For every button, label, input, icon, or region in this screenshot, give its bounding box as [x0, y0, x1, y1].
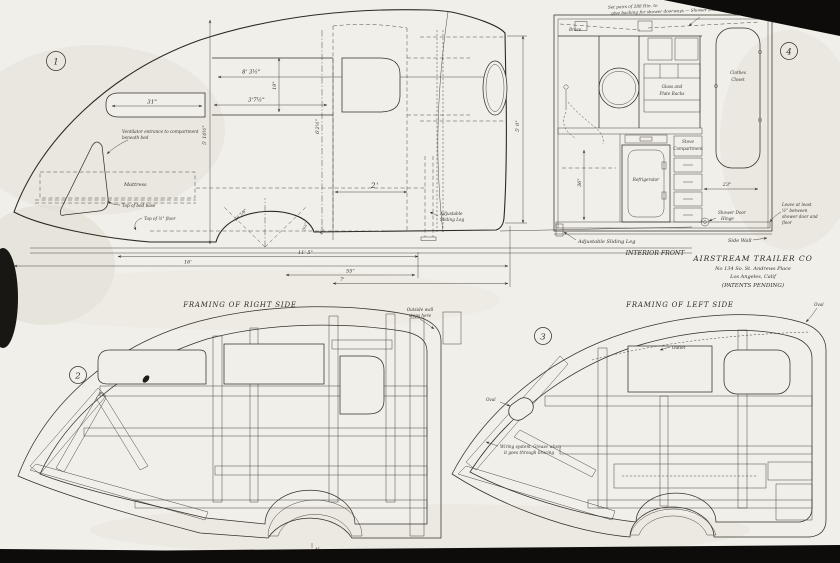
hinge-label-2: Hinge: [720, 216, 734, 221]
wiring-note-1: Wiring system. Grease when: [500, 444, 561, 449]
view2-title: FRAMING OF RIGHT SIDE: [182, 301, 297, 309]
floor-label: Top of ½" floor: [144, 216, 177, 221]
dim-front-window: 31": [147, 100, 157, 106]
outside-wall-note-1: Outside wall: [407, 307, 434, 312]
view1-number: 1: [53, 58, 58, 68]
company-patents: (PATENTS PENDING): [722, 282, 784, 289]
view2-front-window: [98, 350, 206, 384]
dim-upper-short: 3'7½": [248, 97, 265, 104]
dim-door-to-wheel: 2': [370, 182, 379, 190]
dim-window-height: 19": [272, 81, 278, 90]
dim-len-a: 11' 5": [298, 250, 313, 256]
view2-number: 2: [74, 372, 80, 382]
bed-base-label: Top of bed base: [122, 203, 156, 208]
view4-leg-label: Adjustable Sliding Leg: [577, 239, 635, 245]
company-address: No 134 So. St. Andrews Place: [714, 266, 791, 272]
refrigerator-label: Refrigerator: [632, 177, 660, 182]
view3-number: 3: [540, 333, 545, 343]
company-city: Los Angeles, Calif: [729, 274, 777, 280]
view3-title: FRAMING OF LEFT SIDE: [625, 301, 734, 309]
blueprint-sheet: 1 31" 8' 3½" 3'7½" 19": [0, 0, 840, 563]
ventilator-note-2: beneath bed: [122, 135, 149, 140]
wiring-note-2: it goes through bracing: [504, 450, 554, 455]
ventilator-note-1: Ventilator entrance to compartment: [122, 129, 199, 134]
rear-oval-window: [483, 61, 507, 115]
dim-cabinet: 36": [577, 178, 583, 187]
hinge-label-1: Shower Door: [718, 210, 747, 215]
view2-door-window: [340, 356, 384, 414]
front-window: 31": [106, 93, 205, 117]
dim-len-c: 7': [340, 277, 345, 283]
view3-mid-window: [628, 346, 712, 392]
dim-rear-height: 5' 0": [515, 120, 521, 132]
leave-note-1: Leave at least: [781, 202, 812, 207]
brace-label: Brace: [568, 27, 582, 32]
mattress-label: Mattress: [123, 182, 147, 188]
dim-body-height: 5' 10½": [201, 125, 208, 145]
view2-mid-window: [224, 344, 324, 384]
leave-note-2: ½" between: [782, 208, 808, 213]
dim-door-height: 6'2½": [314, 119, 321, 134]
glass-label-2: Plate Racks: [659, 91, 685, 96]
leave-note-3: shower door and: [782, 214, 818, 219]
dim-overall: 16': [184, 260, 192, 266]
stove-label-2: Compartment: [673, 146, 703, 151]
glass-label-1: Glass and: [662, 84, 683, 89]
dim-len-b: 55": [346, 269, 355, 275]
oval-rear-label: Oval: [814, 302, 824, 307]
outlet-label: Outlet: [672, 345, 686, 350]
dim-shelf: 23": [722, 182, 732, 188]
view4-number: 4: [785, 48, 791, 58]
view4-caption: INTERIOR FRONT: [625, 250, 686, 257]
company-name: AIRSTREAM TRAILER CO: [692, 254, 812, 263]
side-wall-label: Side Wall: [728, 238, 752, 244]
door-window: [342, 58, 400, 112]
closet-label-2: Closet: [731, 77, 745, 82]
leave-note-4: floor: [781, 220, 793, 225]
closet-label-1: Clothes: [730, 70, 746, 75]
oval-nose-label: Oval: [486, 397, 496, 402]
stove-label-1: Stove: [682, 139, 694, 144]
leg-label-2: Sliding Leg: [440, 217, 465, 222]
leg-label-1: Adjustable: [439, 211, 463, 216]
dim-upper-long: 8' 3½": [242, 69, 261, 76]
view3-rear-window: [724, 350, 790, 394]
